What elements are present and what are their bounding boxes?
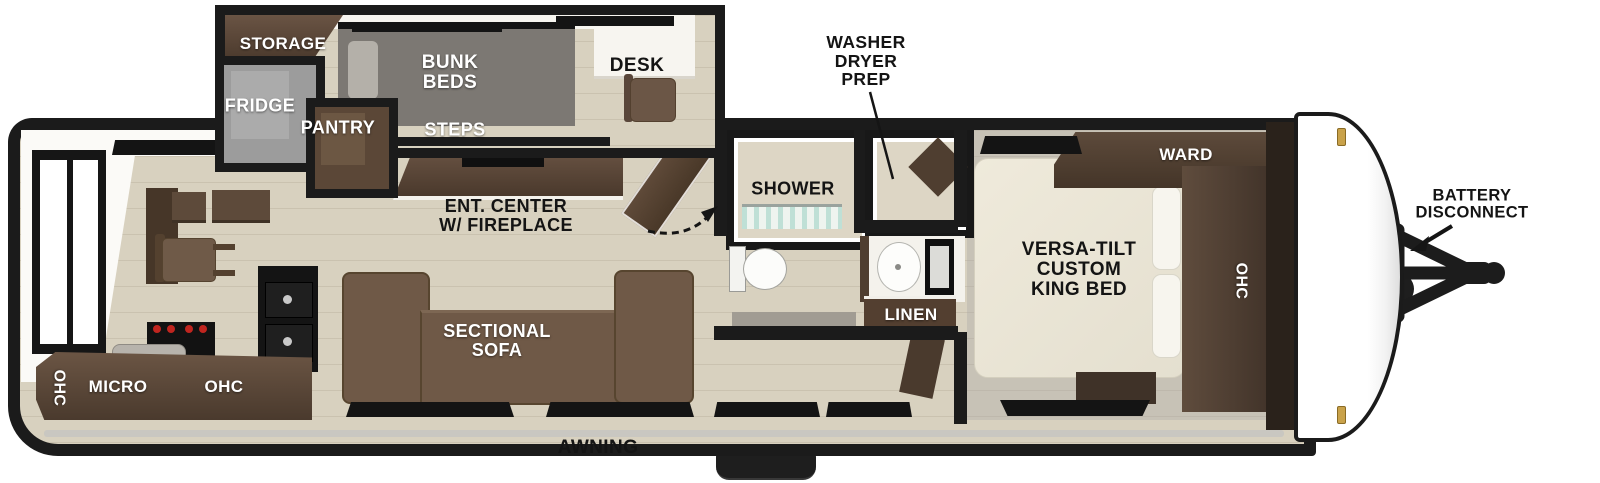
kitchen-upper-shelf [172,192,206,223]
rear-window-pane [40,160,67,344]
floorplan-canvas: STORAGE FRIDGE PANTRY BUNK BEDS STEPS DE… [0,0,1600,483]
gold-hinge [1337,128,1346,146]
battery-disconnect-arrowhead-icon [1410,236,1429,251]
ward-label: WARD [1159,146,1213,164]
bath-bottom-wall [714,326,958,340]
kitchen-ohc-band [36,352,312,420]
hitch-coupler [1456,262,1492,284]
kitchen-chair-seat [162,238,216,282]
sectional-sofa-left-arm [342,272,430,404]
fridge-label: FRIDGE [225,96,295,115]
bed-pillow [1152,186,1181,270]
rear-window [32,150,106,354]
drawer-knob [283,295,292,304]
bunk-beds-label: BUNK BEDS [422,53,479,93]
bedroom-wall-bottom [954,332,967,424]
toilet-bowl [743,248,787,290]
steps-label: STEPS [424,120,485,139]
bedroom-top-window [980,136,1082,154]
pantry [306,98,398,198]
linen-label: LINEN [885,306,938,324]
vanity-counter [860,236,965,302]
bed-pillow [1152,274,1181,358]
hitch-a-frame [1398,230,1464,316]
sectional-sofa-right-arm [614,270,694,404]
battery-disconnect-label: BATTERY DISCONNECT [1415,188,1528,223]
tv-strip [462,158,544,167]
sink-drain [895,264,901,270]
king-bed-label: VERSA-TILT CUSTOM KING BED [1022,240,1136,300]
storage-label: STORAGE [240,35,327,53]
awning-label: AWNING [558,438,639,458]
shower-label: SHOWER [751,179,834,198]
bedroom-ohc-band [1182,166,1268,412]
kitchen-chair [155,232,239,284]
shower-pan [742,204,842,229]
kitchen-chair-arm [213,270,235,276]
bunk-room-window [556,16,674,26]
bed-foot-block [1076,372,1156,404]
mirror-glass [930,246,949,288]
bath-divider-vertical [854,130,865,230]
kitchen-upper-shelf [212,190,270,223]
toilet [729,244,789,292]
entry-door-opening [714,402,820,417]
pantry-label: PANTRY [301,118,375,137]
kitchen-chair-arm [213,244,235,250]
drawer-knob [283,337,292,346]
sectional-sofa-label: SECTIONAL SOFA [443,322,551,360]
desk-label: DESK [610,56,664,76]
stove-knob [153,325,161,333]
bath-counter [732,312,856,326]
gold-hinge [1337,406,1346,424]
bottom-window [346,402,514,417]
bath-divider-horizontal [854,220,958,233]
micro-label: MICRO [89,378,148,396]
stove-knob [185,325,193,333]
desk-chair [622,72,676,122]
ent-center-label: ENT. CENTER W/ FIREPLACE [439,197,573,235]
rear-window-pane [73,160,98,344]
stove-knob [167,325,175,333]
hitch-ball [1483,262,1505,284]
front-cap [1294,112,1404,442]
bottom-window [546,402,694,417]
stove-knob [199,325,207,333]
bedroom-wall-top [954,130,967,227]
ohc-kitchen-label: OHC [205,378,244,396]
bunk-room-window [352,22,502,32]
awning-rail [44,430,1284,437]
ohc-bedroom-label: OHC [1232,263,1249,300]
kitchen-island-cabinet [258,266,318,372]
desk-chair-seat [630,78,676,122]
bunk-under-wall [378,137,610,146]
bunk-pillow [348,41,378,99]
ohc-rear-label: OHC [50,370,67,407]
bottom-window [826,402,912,417]
washer-dryer-prep-label: WASHER DRYER PREP [826,33,905,89]
bedroom-bottom-window [1000,400,1150,416]
battery-disconnect-arrow-icon [1424,226,1452,243]
